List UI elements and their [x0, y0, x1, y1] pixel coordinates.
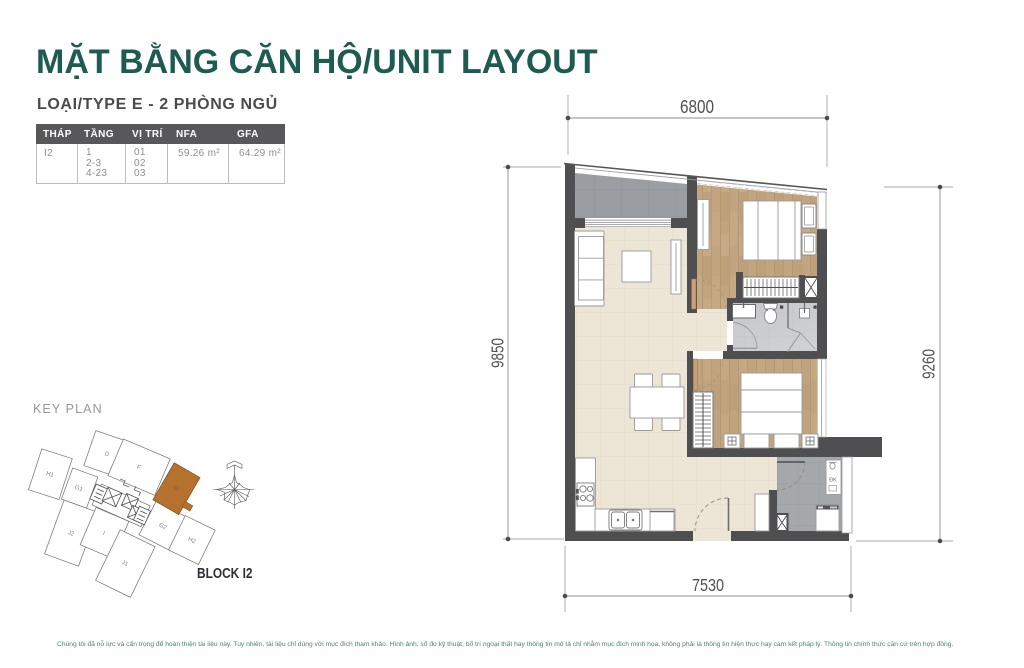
svg-text:9260: 9260	[919, 349, 939, 379]
svg-text:6800: 6800	[680, 96, 714, 117]
svg-text:7530: 7530	[692, 575, 724, 595]
svg-text:9850: 9850	[488, 338, 508, 368]
svg-text:ĐK: ĐK	[829, 478, 837, 484]
